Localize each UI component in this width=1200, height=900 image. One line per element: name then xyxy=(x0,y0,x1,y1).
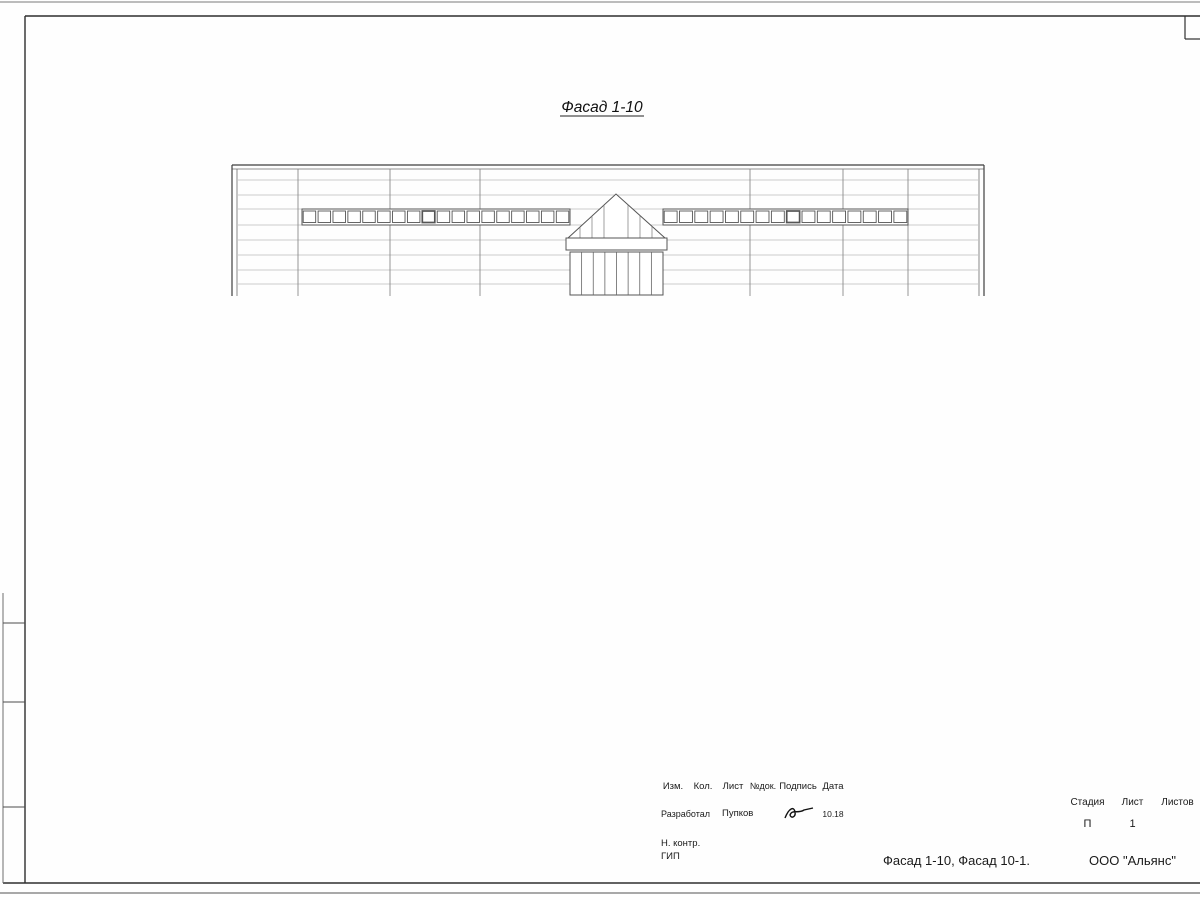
window-cell xyxy=(407,211,419,223)
facade-title: Фасад 1-10 xyxy=(561,99,643,116)
facade-1-10: Фасад 1-10 xyxy=(232,99,984,296)
window-cell xyxy=(348,211,360,223)
window-cell xyxy=(303,211,315,223)
window-cell xyxy=(482,211,494,223)
window-cell xyxy=(695,211,708,223)
entrance-canopy xyxy=(566,238,667,250)
window-cell xyxy=(894,211,907,223)
window-cell xyxy=(378,211,390,223)
window-cell xyxy=(710,211,723,223)
window-cell-marked xyxy=(422,211,434,223)
window-cell xyxy=(452,211,464,223)
window-cell xyxy=(541,211,553,223)
window-cell xyxy=(497,211,509,223)
window-cell xyxy=(817,211,830,223)
window-cell xyxy=(833,211,846,223)
window-cell xyxy=(333,211,345,223)
sheet-frame xyxy=(0,2,1200,893)
window-cell xyxy=(556,211,568,223)
drawing-sheet: Фасад 1-10 Изм. Кол. Лист №док. Подпись … xyxy=(0,0,1200,900)
window-cell xyxy=(393,211,405,223)
window-cell xyxy=(437,211,449,223)
window-cell xyxy=(363,211,375,223)
window-cell xyxy=(756,211,769,223)
window-cell xyxy=(771,211,784,223)
window-cell xyxy=(741,211,754,223)
window-cell xyxy=(802,211,815,223)
window-cell xyxy=(527,211,539,223)
entrance-pyramid-roof xyxy=(568,194,665,238)
window-cell xyxy=(680,211,693,223)
facade-drawing-canvas: Фасад 1-10 xyxy=(0,0,1200,900)
window-cell xyxy=(848,211,861,223)
window-cell-marked xyxy=(787,211,800,223)
window-cell xyxy=(318,211,330,223)
window-cell xyxy=(725,211,738,223)
window-cell xyxy=(879,211,892,223)
window-cell xyxy=(512,211,524,223)
window-cell xyxy=(863,211,876,223)
window-cell xyxy=(467,211,479,223)
window-cell xyxy=(664,211,677,223)
